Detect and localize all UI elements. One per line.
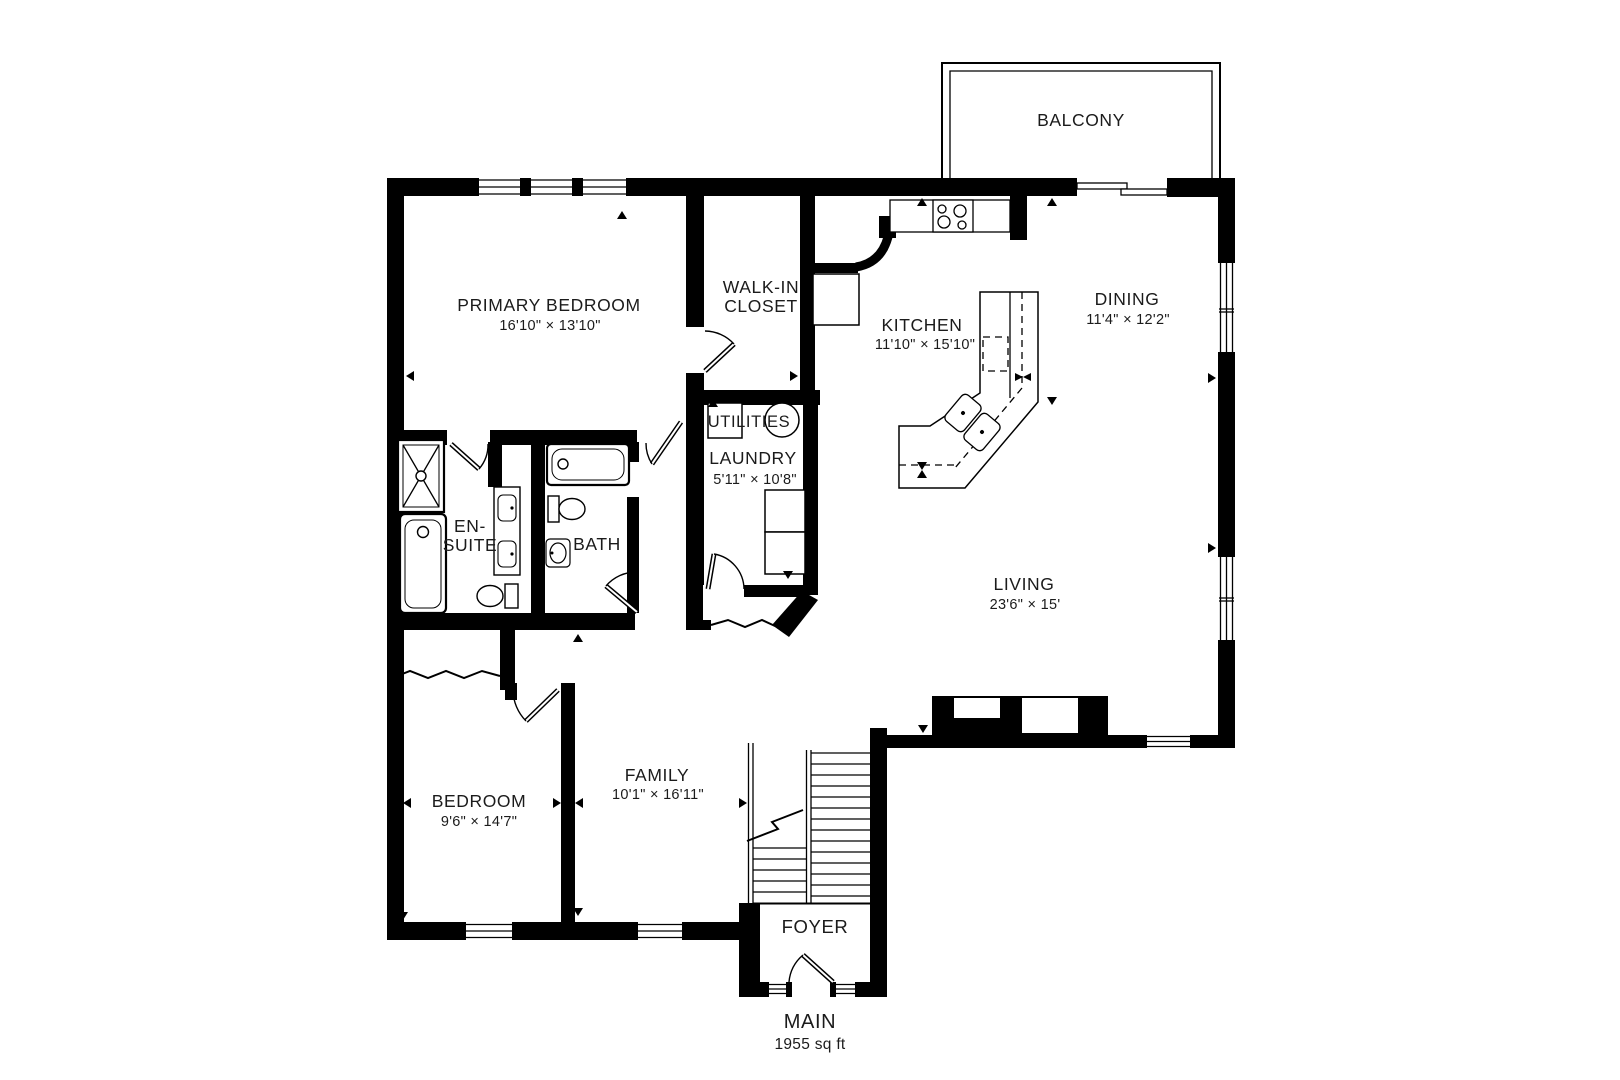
label-primary-bedroom: PRIMARY BEDROOM <box>457 295 640 315</box>
dims-primary-bedroom: 16'10" × 13'10" <box>499 318 600 334</box>
window-living-right <box>1219 557 1234 640</box>
ensuite-toilet-icon <box>477 584 518 608</box>
hall-closet-rod <box>711 620 775 627</box>
label-bath: BATH <box>573 534 621 554</box>
stove-icon <box>933 200 973 232</box>
stair-treads-left <box>753 848 806 892</box>
dims-bedroom: 9'6" × 14'7" <box>441 814 517 830</box>
window-family <box>638 925 682 938</box>
label-level: MAIN <box>784 1011 836 1033</box>
label-walkin-line2: CLOSET <box>724 296 798 316</box>
bedroom-closet-rod <box>392 671 500 678</box>
bath-tub-icon <box>547 444 629 485</box>
ensuite-vanity-icon <box>494 487 520 575</box>
label-area: 1955 sq ft <box>774 1036 845 1053</box>
bath-sink-icon <box>546 539 570 567</box>
fridge-icon <box>813 274 859 325</box>
door-front-entry <box>789 955 833 982</box>
foyer-sidelights <box>769 985 855 994</box>
floorplan-page: BALCONY PRIMARY BEDROOM 16'10" × 13'10" … <box>0 0 1620 1080</box>
label-walkin-line1: WALK-IN <box>723 277 799 297</box>
label-ensuite-line1: EN- <box>454 516 486 536</box>
label-family: FAMILY <box>625 765 690 785</box>
door-walkin-closet <box>705 331 734 371</box>
window-living-bottom <box>1147 737 1190 747</box>
stair-treads-right <box>811 753 870 896</box>
floorplan-svg: BALCONY PRIMARY BEDROOM 16'10" × 13'10" … <box>0 0 1620 1080</box>
window-primary-bedroom <box>479 180 626 194</box>
balcony-slider <box>1077 183 1167 195</box>
label-dining: DINING <box>1095 289 1160 309</box>
label-utilities: UTILITIES <box>708 413 790 431</box>
staircase <box>747 743 870 904</box>
dims-family: 10'1" × 16'11" <box>612 787 704 803</box>
shower-icon <box>398 440 444 512</box>
label-bedroom: BEDROOM <box>432 791 527 811</box>
label-laundry: LAUNDRY <box>709 448 797 468</box>
window-bedroom <box>466 925 512 938</box>
label-living: LIVING <box>994 574 1055 594</box>
dims-laundry: 5'11" × 10'8" <box>713 472 797 488</box>
label-ensuite-line2: SUITE <box>443 535 498 555</box>
door-bedroom <box>513 690 558 721</box>
dims-kitchen: 11'10" × 15'10" <box>875 337 975 353</box>
window-dining <box>1219 263 1234 352</box>
door-ensuite <box>451 444 488 469</box>
stair-break-line <box>747 810 803 841</box>
bath-toilet-icon <box>548 496 585 522</box>
label-foyer: FOYER <box>782 916 849 937</box>
dims-dining: 11'4" × 12'2" <box>1086 312 1170 328</box>
ensuite-tub-icon <box>400 514 446 613</box>
door-laundry <box>708 554 744 589</box>
dims-living: 23'6" × 15' <box>990 597 1061 613</box>
washer-dryer-icon <box>765 490 805 574</box>
label-balcony: BALCONY <box>1037 110 1125 130</box>
door-hall-from-primary <box>646 422 681 464</box>
label-kitchen: KITCHEN <box>881 315 962 335</box>
